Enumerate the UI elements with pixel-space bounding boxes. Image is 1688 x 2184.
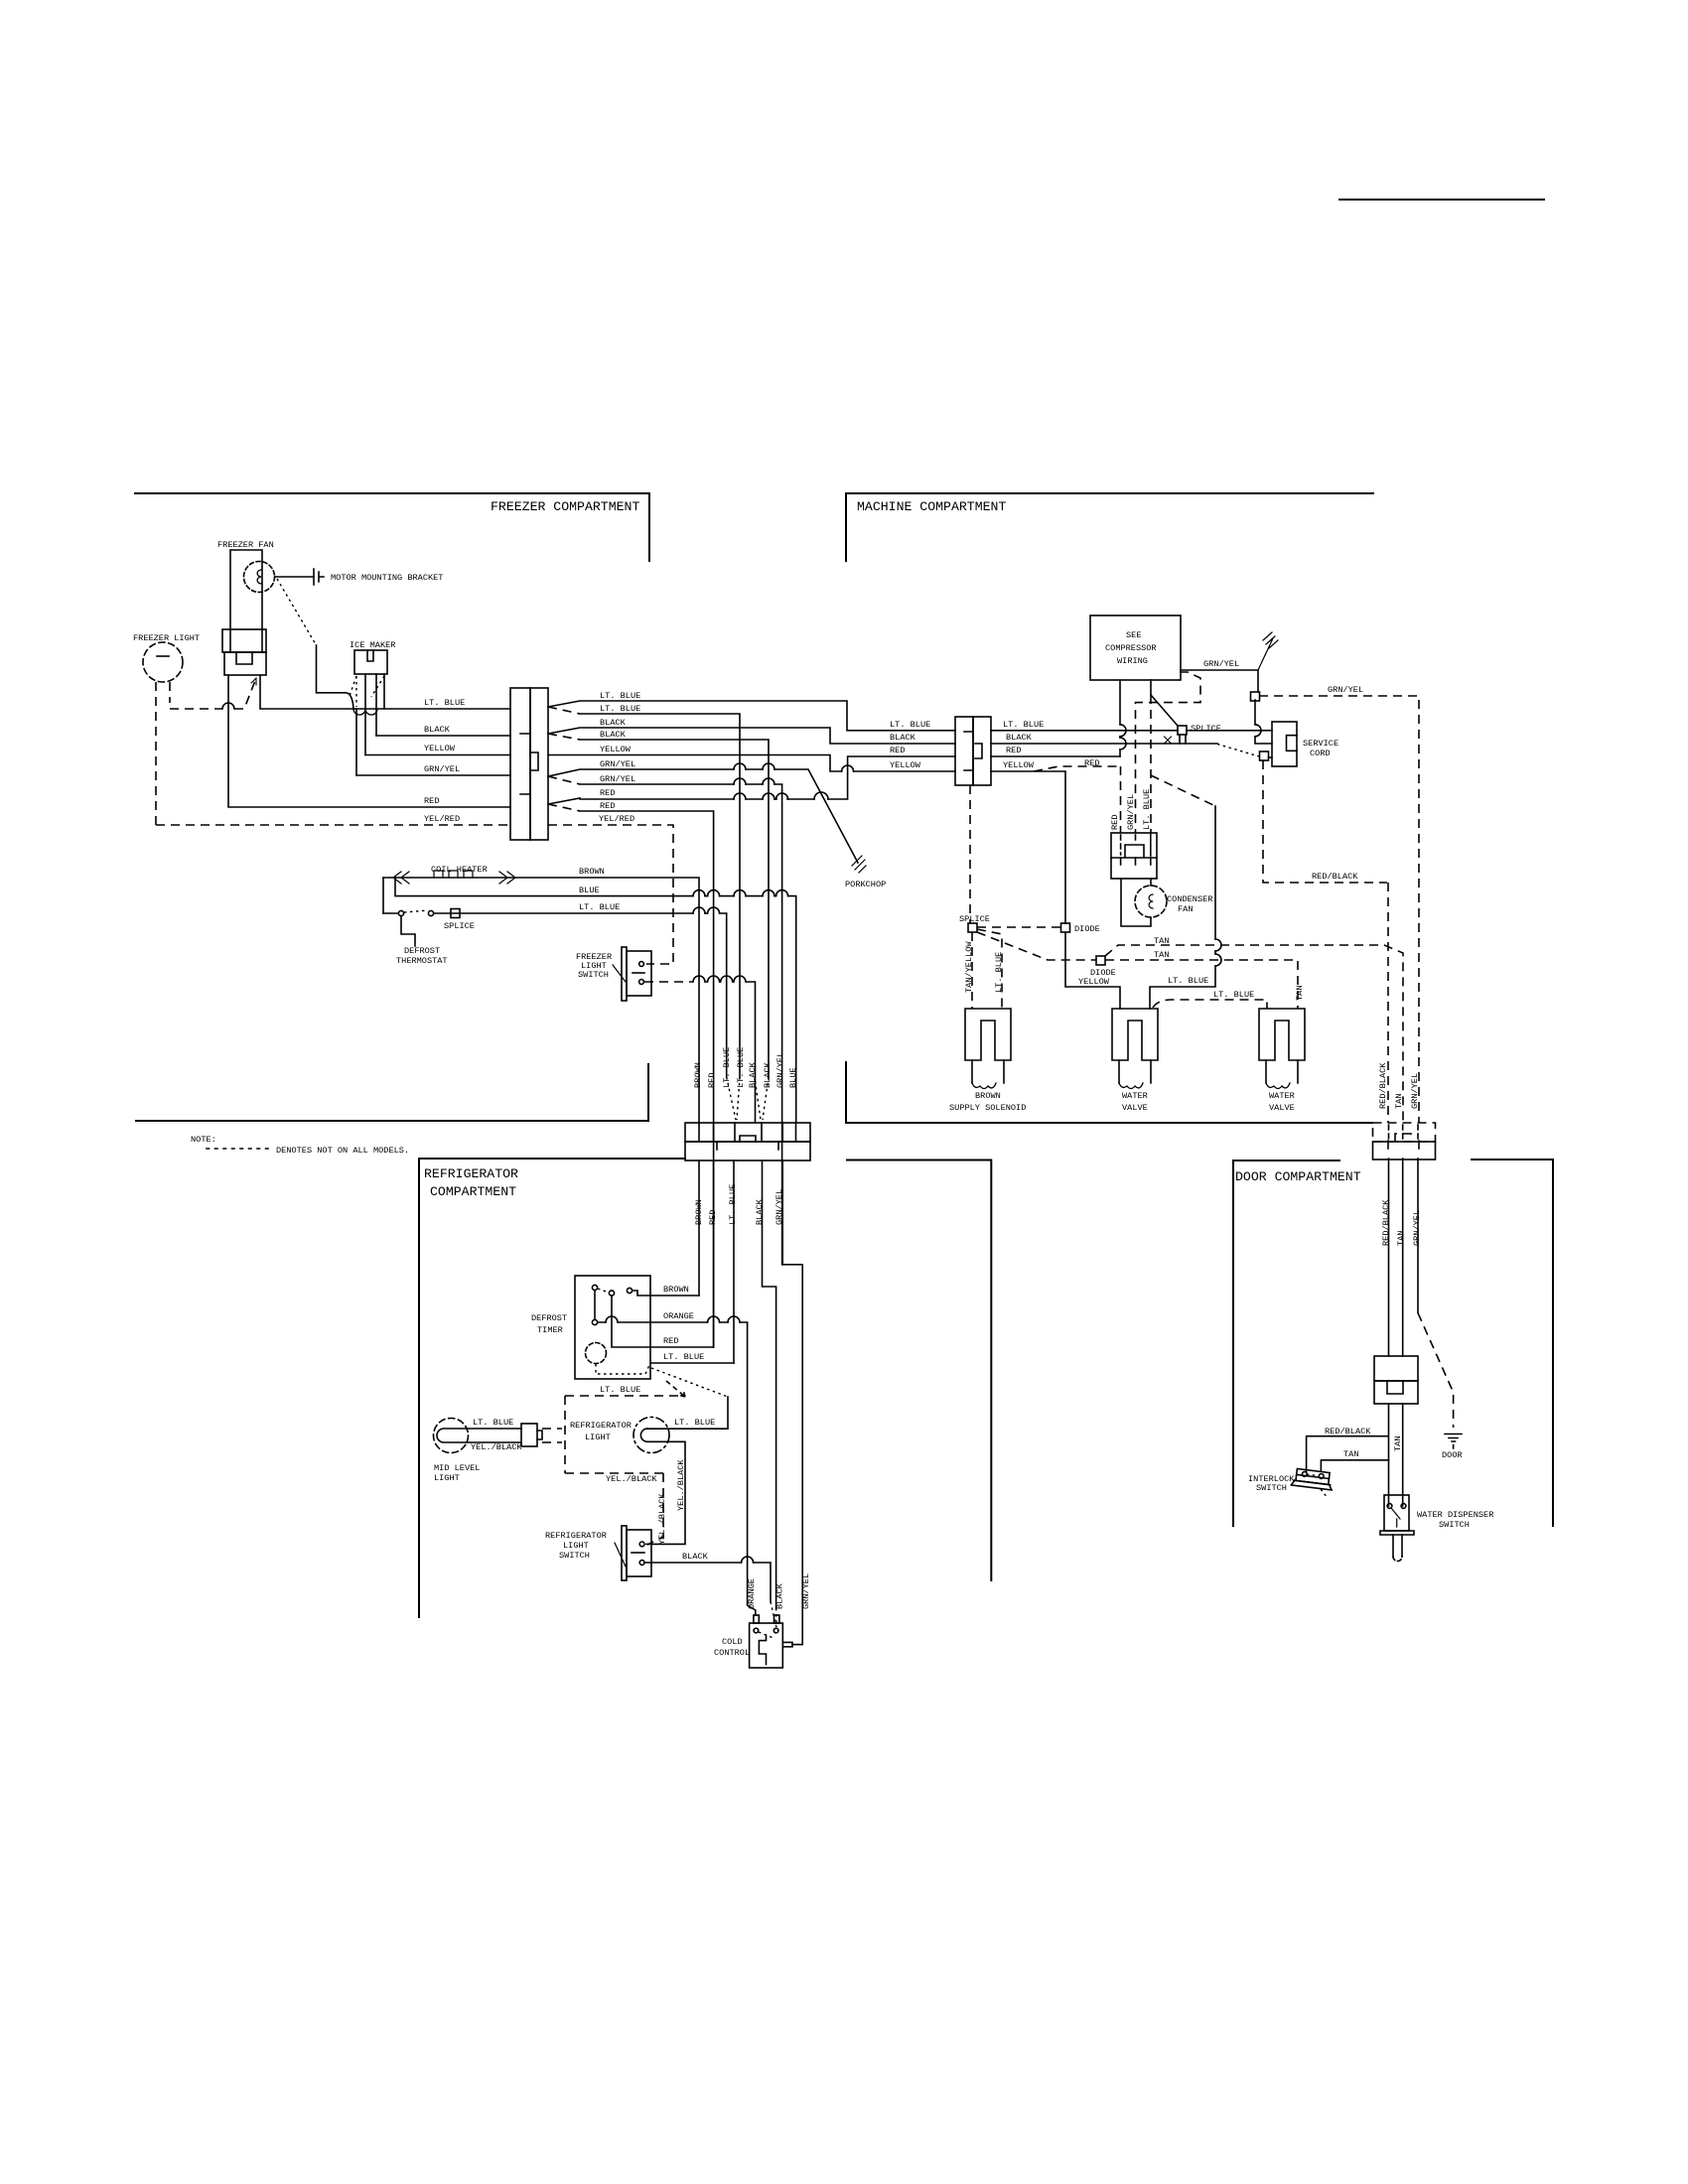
svg-text:WATER: WATER [1122, 1091, 1148, 1101]
svg-text:LT. BLUE: LT. BLUE [424, 698, 465, 708]
svg-text:VALVE: VALVE [1122, 1103, 1148, 1113]
svg-text:GRN/YEL: GRN/YEL [1203, 659, 1239, 669]
svg-text:TAN: TAN [1295, 986, 1305, 1001]
svg-text:COMPRESSOR: COMPRESSOR [1105, 643, 1157, 653]
svg-text:BROWN: BROWN [663, 1285, 689, 1295]
svg-text:GRN/YEL: GRN/YEL [1412, 1210, 1422, 1246]
svg-text:TAN: TAN [1154, 950, 1169, 960]
svg-text:SERVICE: SERVICE [1303, 739, 1338, 749]
svg-text:MID LEVEL: MID LEVEL [434, 1463, 480, 1473]
svg-text:REFRIGERATOR: REFRIGERATOR [545, 1531, 607, 1541]
svg-text:SPLICE: SPLICE [444, 921, 475, 931]
svg-text:SPLICE: SPLICE [959, 914, 990, 924]
svg-text:COLD: COLD [722, 1637, 743, 1647]
svg-text:GRN/YEL: GRN/YEL [1328, 685, 1363, 695]
svg-text:BLACK: BLACK [424, 725, 451, 735]
svg-text:ICE MAKER: ICE MAKER [350, 640, 395, 650]
svg-text:GRN/YEL: GRN/YEL [775, 1052, 785, 1088]
svg-text:RED: RED [708, 1210, 718, 1225]
svg-text:ORANGE: ORANGE [663, 1311, 694, 1321]
svg-text:YELLOW: YELLOW [1078, 977, 1110, 987]
svg-text:TAN: TAN [1154, 936, 1169, 946]
svg-text:TAN/YELLOW: TAN/YELLOW [964, 941, 974, 993]
svg-text:LT. BLUE: LT. BLUE [736, 1047, 746, 1088]
svg-text:FREEZER COMPARTMENT: FREEZER COMPARTMENT [491, 499, 639, 514]
svg-text:RED/BLACK: RED/BLACK [1381, 1199, 1391, 1246]
svg-text:RED: RED [600, 788, 615, 798]
svg-text:BLACK: BLACK [748, 1061, 758, 1088]
svg-text:GRN/YEL: GRN/YEL [600, 759, 635, 769]
svg-text:CORD: CORD [1310, 749, 1331, 758]
svg-text:LT. BLUE: LT. BLUE [890, 720, 930, 730]
svg-text:NOTE:: NOTE: [191, 1135, 216, 1145]
svg-text:GRN/YEL: GRN/YEL [1410, 1073, 1420, 1109]
svg-text:SPLICE: SPLICE [1191, 724, 1221, 734]
svg-text:YEL./BLACK: YEL./BLACK [657, 1493, 667, 1545]
svg-text:LT. BLUE: LT. BLUE [473, 1418, 513, 1428]
svg-text:COMPARTMENT: COMPARTMENT [430, 1184, 516, 1199]
svg-text:RED: RED [1110, 815, 1120, 830]
svg-text:LT. BLUE: LT. BLUE [1003, 720, 1044, 730]
svg-text:DIODE: DIODE [1090, 968, 1116, 978]
svg-text:SEE: SEE [1126, 630, 1141, 640]
svg-text:RED/BLACK: RED/BLACK [1378, 1062, 1388, 1109]
svg-text:LT. BLUE: LT. BLUE [600, 1385, 640, 1395]
svg-text:DEFROST: DEFROST [404, 946, 440, 956]
svg-text:TAN: TAN [1396, 1231, 1406, 1246]
svg-text:WATER DISPENSER: WATER DISPENSER [1417, 1510, 1493, 1520]
svg-text:LT. BLUE: LT. BLUE [600, 691, 640, 701]
svg-text:BLUE: BLUE [579, 886, 600, 895]
svg-text:YEL./BLACK: YEL./BLACK [676, 1459, 686, 1511]
svg-text:BLUE: BLUE [788, 1067, 798, 1088]
svg-text:YELLOW: YELLOW [1003, 760, 1035, 770]
svg-text:BLACK: BLACK [775, 1582, 785, 1609]
svg-text:PORKCHOP: PORKCHOP [845, 880, 886, 889]
svg-text:DENOTES NOT ON ALL MODELS.: DENOTES NOT ON ALL MODELS. [276, 1146, 409, 1156]
svg-text:WIRING: WIRING [1117, 656, 1148, 666]
svg-text:MACHINE COMPARTMENT: MACHINE COMPARTMENT [857, 499, 1006, 514]
svg-text:YEL./BLACK: YEL./BLACK [606, 1474, 657, 1484]
svg-text:CONDENSER: CONDENSER [1167, 894, 1212, 904]
svg-text:RED/BLACK: RED/BLACK [1312, 872, 1358, 882]
svg-text:DOOR: DOOR [1442, 1450, 1463, 1460]
svg-text:RED/BLACK: RED/BLACK [1325, 1427, 1371, 1436]
svg-text:MOTOR MOUNTING BRACKET: MOTOR MOUNTING BRACKET [331, 573, 443, 583]
svg-text:YELLOW: YELLOW [600, 745, 632, 754]
svg-text:WATER: WATER [1269, 1091, 1295, 1101]
svg-text:BROWN: BROWN [694, 1199, 704, 1225]
svg-text:COIL HEATER: COIL HEATER [431, 865, 488, 875]
svg-text:BLACK: BLACK [1006, 733, 1033, 743]
svg-text:REFRIGERATOR: REFRIGERATOR [570, 1421, 632, 1431]
svg-text:RED: RED [890, 746, 905, 755]
svg-text:ORANGE: ORANGE [747, 1578, 757, 1609]
svg-text:YEL/RED: YEL/RED [599, 814, 634, 824]
svg-text:YELLOW: YELLOW [890, 760, 921, 770]
svg-text:LT. BLUE: LT. BLUE [663, 1352, 704, 1362]
svg-text:LT. BLUE: LT. BLUE [1213, 990, 1254, 1000]
svg-text:DOOR COMPARTMENT: DOOR COMPARTMENT [1235, 1169, 1361, 1184]
svg-text:DIODE: DIODE [1074, 924, 1100, 934]
svg-text:TAN: TAN [1343, 1449, 1358, 1459]
svg-text:BLACK: BLACK [682, 1552, 709, 1562]
svg-text:DEFROST: DEFROST [531, 1313, 567, 1323]
svg-text:SWITCH: SWITCH [578, 970, 609, 980]
svg-text:RED: RED [600, 801, 615, 811]
svg-text:RED: RED [663, 1336, 678, 1346]
svg-text:LT. BLUE: LT. BLUE [1142, 789, 1152, 830]
svg-text:LT. BLUE: LT. BLUE [994, 952, 1004, 993]
svg-text:GRN/YEL: GRN/YEL [1126, 794, 1136, 830]
svg-text:LIGHT: LIGHT [563, 1541, 589, 1551]
svg-text:LT. BLUE: LT. BLUE [722, 1047, 732, 1088]
svg-text:YELLOW: YELLOW [424, 744, 456, 753]
svg-text:BROWN: BROWN [579, 867, 605, 877]
svg-text:FREEZER FAN: FREEZER FAN [217, 540, 274, 550]
svg-text:BLACK: BLACK [890, 733, 916, 743]
svg-text:BLACK: BLACK [755, 1198, 765, 1225]
svg-text:GRN/YEL: GRN/YEL [600, 774, 635, 784]
svg-text:TIMER: TIMER [537, 1325, 563, 1335]
svg-text:LT. BLUE: LT. BLUE [600, 704, 640, 714]
svg-text:TAN: TAN [1393, 1436, 1403, 1451]
svg-text:VALVE: VALVE [1269, 1103, 1295, 1113]
svg-text:REFRIGERATOR: REFRIGERATOR [424, 1166, 518, 1181]
svg-text:RED: RED [424, 796, 439, 806]
svg-text:LT. BLUE: LT. BLUE [579, 902, 620, 912]
svg-text:TAN: TAN [1394, 1094, 1404, 1109]
svg-text:GRN/YEL: GRN/YEL [424, 764, 460, 774]
svg-text:RED: RED [1006, 746, 1021, 755]
svg-text:LT. BLUE: LT. BLUE [674, 1418, 715, 1428]
svg-text:SWITCH: SWITCH [1256, 1483, 1287, 1493]
svg-text:FAN: FAN [1178, 904, 1193, 914]
svg-text:THERMOSTAT: THERMOSTAT [396, 956, 448, 966]
svg-text:SWITCH: SWITCH [559, 1551, 590, 1561]
svg-text:SUPPLY SOLENOID: SUPPLY SOLENOID [949, 1103, 1026, 1113]
svg-text:BROWN: BROWN [975, 1091, 1001, 1101]
svg-text:LIGHT: LIGHT [434, 1473, 460, 1483]
svg-text:YEL./BLACK: YEL./BLACK [471, 1442, 522, 1452]
svg-text:RED: RED [707, 1073, 717, 1088]
svg-text:BROWN: BROWN [693, 1062, 703, 1088]
svg-text:BLACK: BLACK [600, 718, 627, 728]
svg-text:CONTROL: CONTROL [714, 1648, 750, 1658]
svg-text:LT. BLUE: LT. BLUE [728, 1184, 738, 1225]
svg-text:YEL/RED: YEL/RED [424, 814, 460, 824]
svg-text:LT. BLUE: LT. BLUE [1168, 976, 1208, 986]
svg-text:BLACK: BLACK [600, 730, 627, 740]
svg-text:GRN/YEL: GRN/YEL [801, 1573, 811, 1609]
svg-text:FREEZER LIGHT: FREEZER LIGHT [133, 633, 200, 643]
svg-text:LIGHT: LIGHT [585, 1433, 611, 1442]
svg-text:GRN/YEL: GRN/YEL [774, 1189, 784, 1225]
svg-text:SWITCH: SWITCH [1439, 1520, 1470, 1530]
